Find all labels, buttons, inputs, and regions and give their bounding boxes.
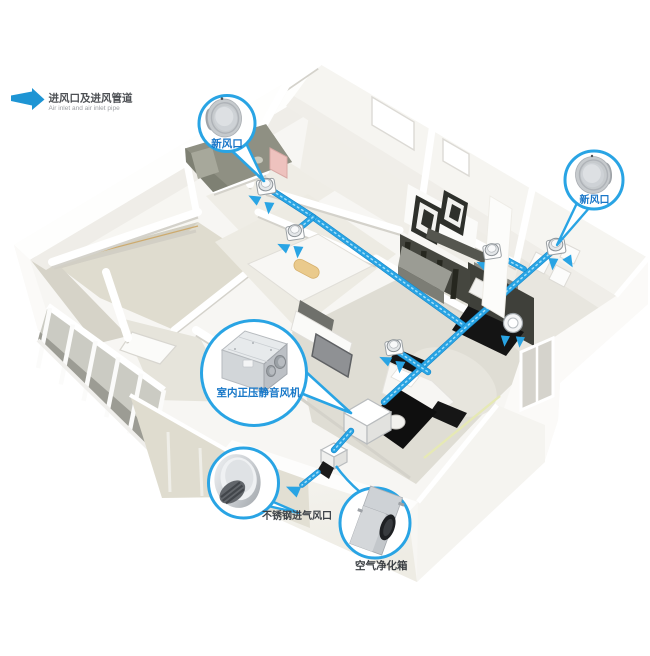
svg-text:室内正压静音风机: 室内正压静音风机 (217, 386, 301, 399)
svg-text:新风口: 新风口 (580, 193, 610, 206)
svg-text:Air inlet and air inlet pipe: Air inlet and air inlet pipe (49, 105, 121, 112)
svg-text:空气净化箱: 空气净化箱 (355, 559, 408, 572)
svg-text:进风口及进风管道: 进风口及进风管道 (49, 92, 133, 105)
svg-text:新风口: 新风口 (211, 137, 243, 150)
svg-text:不锈钢进气风口: 不锈钢进气风口 (262, 509, 332, 522)
